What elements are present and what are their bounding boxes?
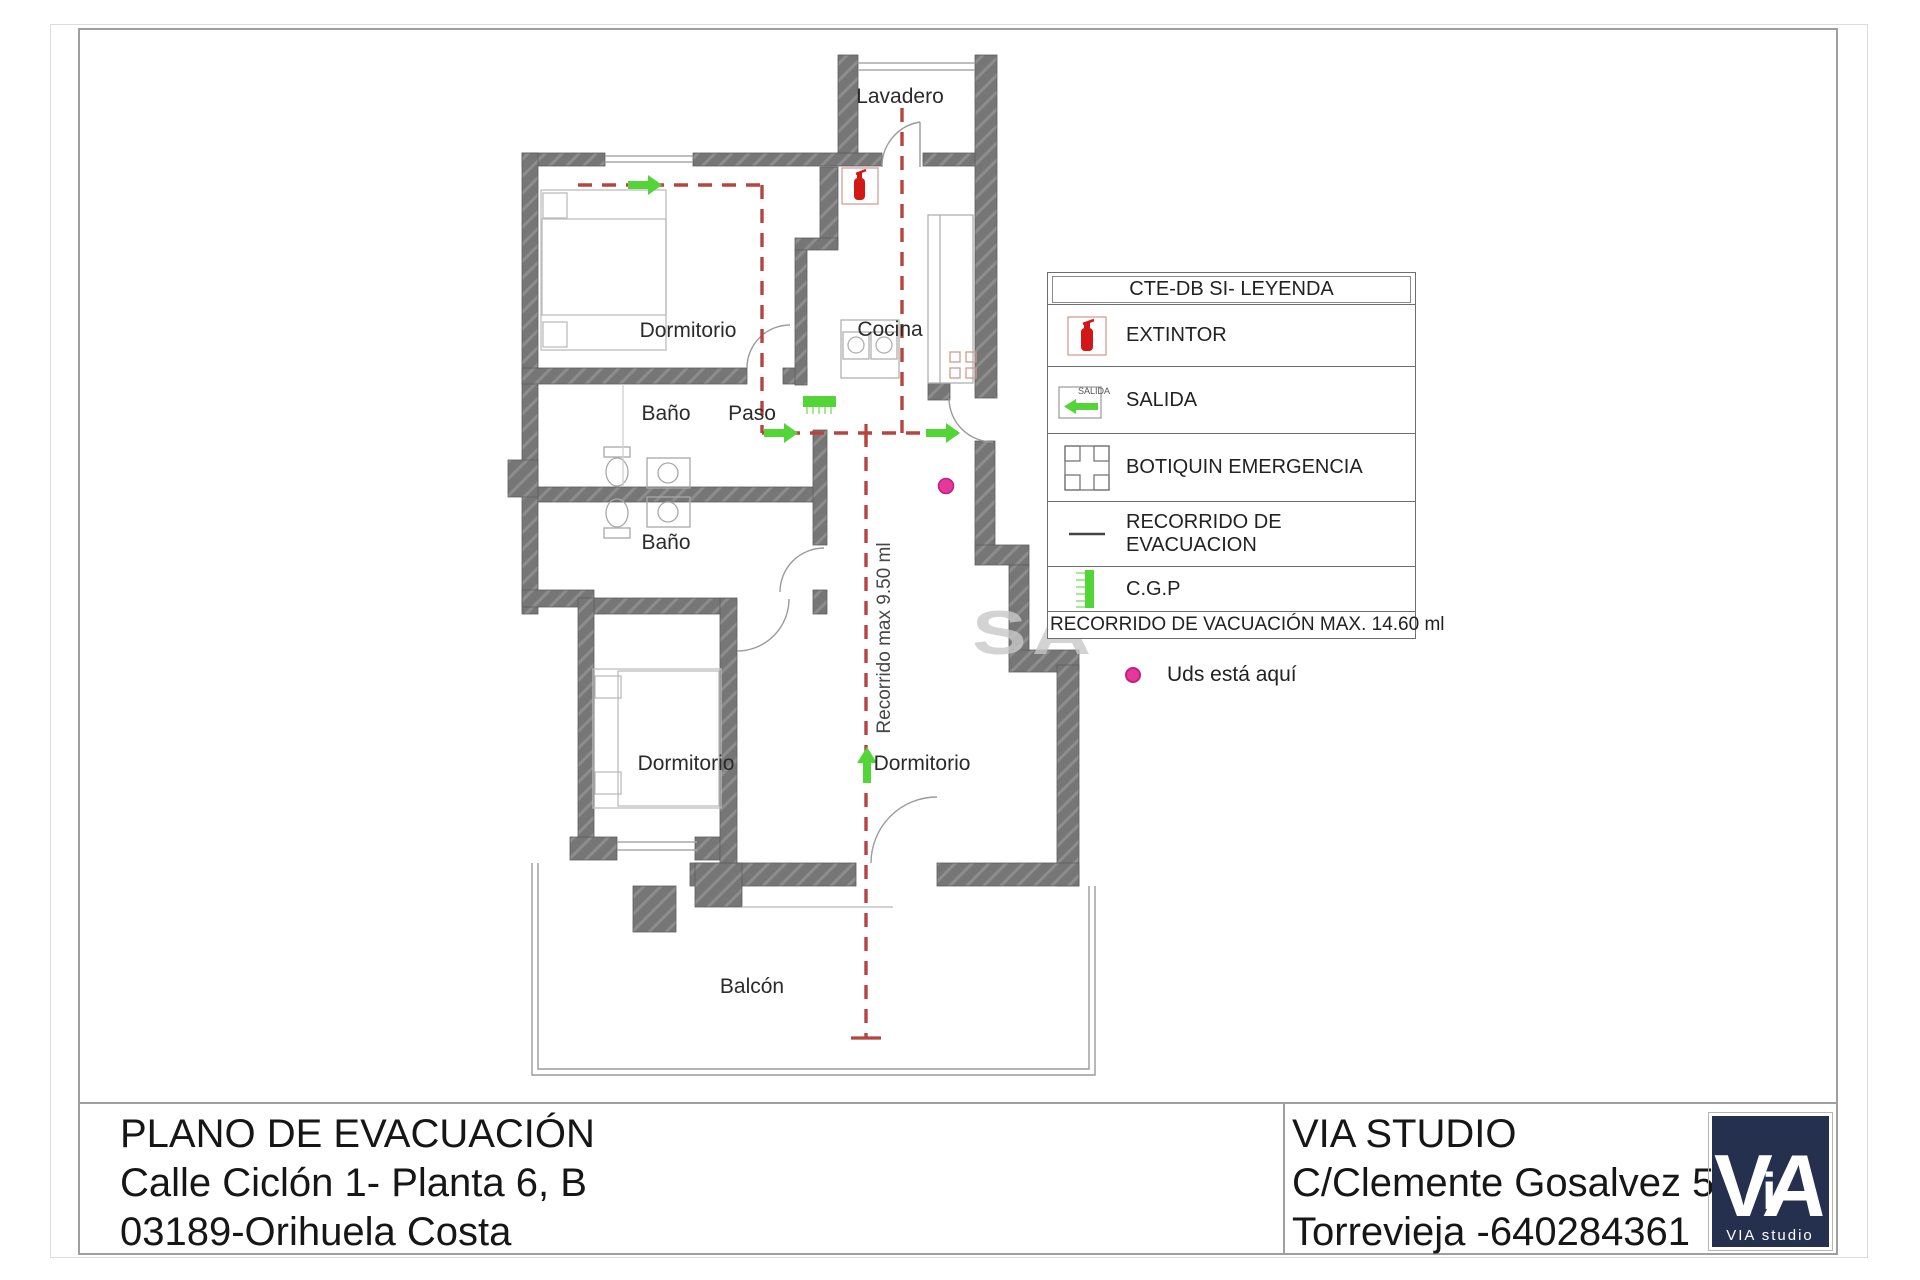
room-label-dormitorio-top: Dormitorio bbox=[640, 319, 737, 342]
logo-letter-a: A bbox=[1759, 1136, 1829, 1235]
room-label-lavadero: Lavadero bbox=[856, 85, 944, 108]
room-label-dormitorio-right: Dormitorio bbox=[874, 752, 971, 775]
room-label-paso: Paso bbox=[728, 402, 776, 425]
wall-segment bbox=[695, 837, 720, 860]
route-line-icon bbox=[1048, 529, 1126, 539]
title-block-divider bbox=[1283, 1102, 1285, 1253]
legend-item-label: EXTINTOR bbox=[1126, 324, 1227, 347]
studio-logo-cell: V i A VIA studio bbox=[1708, 1112, 1833, 1251]
you-are-here-dot bbox=[1125, 667, 1141, 683]
route-arrow-right bbox=[926, 423, 960, 443]
you-are-here-dot-plan bbox=[939, 479, 954, 494]
extinguisher-icon bbox=[1048, 316, 1126, 356]
wall-segment bbox=[633, 886, 676, 932]
cgp-icon bbox=[1048, 568, 1126, 610]
logo-caption: VIA studio bbox=[1726, 1227, 1814, 1244]
legend-item-label: C.G.P bbox=[1126, 578, 1180, 601]
legend-item-recorrido: RECORRIDO DE EVACUACION bbox=[1048, 501, 1415, 566]
wall-segment bbox=[937, 863, 1079, 886]
wall-segment bbox=[975, 545, 1029, 565]
wall-segment bbox=[928, 383, 950, 400]
balcony-railing bbox=[532, 863, 1095, 1075]
legend-title: CTE-DB SI- LEYENDA bbox=[1052, 276, 1411, 303]
plan-title: PLANO DE EVACUACIÓN bbox=[120, 1114, 595, 1154]
wall-segment bbox=[570, 837, 617, 860]
bed-bottom bbox=[593, 669, 721, 808]
wall-segment bbox=[975, 441, 995, 551]
wall-segment bbox=[923, 153, 977, 166]
wall-segment bbox=[813, 590, 827, 614]
studio-name: VIA STUDIO bbox=[1292, 1114, 1517, 1154]
wall-segment bbox=[813, 430, 827, 545]
door-arc bbox=[737, 599, 789, 651]
wall-segment bbox=[1057, 665, 1079, 886]
sink bbox=[647, 458, 690, 488]
title-block-top-border bbox=[78, 1102, 1838, 1104]
room-labels: Lavadero Dormitorio Cocina Baño Paso Bañ… bbox=[638, 85, 971, 998]
legend-item-botiquin: BOTIQUIN EMERGENCIA bbox=[1048, 433, 1415, 501]
you-are-here-annotation: Uds está aquí bbox=[1125, 663, 1297, 687]
floor-plan: Lavadero Dormitorio Cocina Baño Paso Bañ… bbox=[0, 0, 1920, 1280]
exit-icon-text: SALIDA bbox=[1078, 386, 1110, 396]
studio-logo: V i A VIA studio bbox=[1712, 1116, 1829, 1247]
first-aid-icon bbox=[1048, 445, 1126, 491]
legend-item-extintor: EXTINTOR bbox=[1048, 304, 1415, 366]
door-arc bbox=[871, 797, 937, 863]
cgp-icon bbox=[803, 396, 836, 414]
room-label-bano-bottom: Baño bbox=[641, 531, 690, 554]
wall-segment bbox=[820, 167, 838, 245]
toilet bbox=[604, 447, 630, 486]
door-arc bbox=[780, 548, 824, 592]
legend-title-row: CTE-DB SI- LEYENDA bbox=[1048, 273, 1415, 304]
legend-box: CTE-DB SI- LEYENDA EXTINTOR SALIDA SALID… bbox=[1047, 272, 1416, 639]
route-arrow-right bbox=[764, 423, 798, 443]
wall-segment bbox=[538, 487, 827, 502]
wall-segment bbox=[594, 598, 720, 614]
wall-segment bbox=[720, 598, 737, 863]
door-arc bbox=[747, 325, 790, 368]
room-label-bano-top: Baño bbox=[641, 402, 690, 425]
legend-item-cgp: C.G.P bbox=[1048, 566, 1415, 611]
route-length-annotation: Recorrido max 9.50 ml bbox=[874, 542, 895, 733]
walls bbox=[508, 55, 1079, 932]
wall-segment bbox=[522, 368, 747, 384]
plan-address-line1: Calle Ciclón 1- Planta 6, B bbox=[120, 1163, 587, 1203]
wall-segment bbox=[695, 863, 742, 907]
route-arrow-right bbox=[628, 175, 662, 195]
wall-segment bbox=[838, 55, 858, 153]
wall-segment bbox=[795, 238, 838, 250]
wall-segment bbox=[693, 153, 882, 166]
plan-address-line2: 03189-Orihuela Costa bbox=[120, 1212, 511, 1252]
room-label-dormitorio-left: Dormitorio bbox=[638, 752, 735, 775]
legend-footer: RECORRIDO DE VACUACIÓN MAX. 14.60 ml bbox=[1048, 611, 1415, 638]
legend-item-label: SALIDA bbox=[1126, 389, 1197, 412]
wall-segment bbox=[975, 55, 997, 398]
legend-item-salida: SALIDA SALIDA bbox=[1048, 366, 1415, 433]
wall-segment bbox=[508, 460, 538, 497]
toilet bbox=[604, 499, 630, 538]
wall-segment bbox=[795, 250, 807, 385]
legend-item-label: RECORRIDO DE EVACUACION bbox=[1126, 511, 1415, 557]
legend-item-label: BOTIQUIN EMERGENCIA bbox=[1126, 456, 1363, 479]
studio-city-phone: Torrevieja -640284361 bbox=[1292, 1212, 1690, 1252]
route-arrows bbox=[628, 175, 960, 783]
room-label-balcon: Balcón bbox=[720, 975, 784, 998]
you-are-here-label: Uds está aquí bbox=[1167, 663, 1297, 687]
exit-icon: SALIDA bbox=[1048, 380, 1126, 420]
extinguisher-icon bbox=[842, 168, 878, 204]
room-label-cocina: Cocina bbox=[857, 318, 923, 341]
wall-segment bbox=[578, 598, 594, 837]
studio-address: C/Clemente Gosalvez 59 bbox=[1292, 1163, 1737, 1203]
first-aid-icon bbox=[950, 352, 976, 378]
